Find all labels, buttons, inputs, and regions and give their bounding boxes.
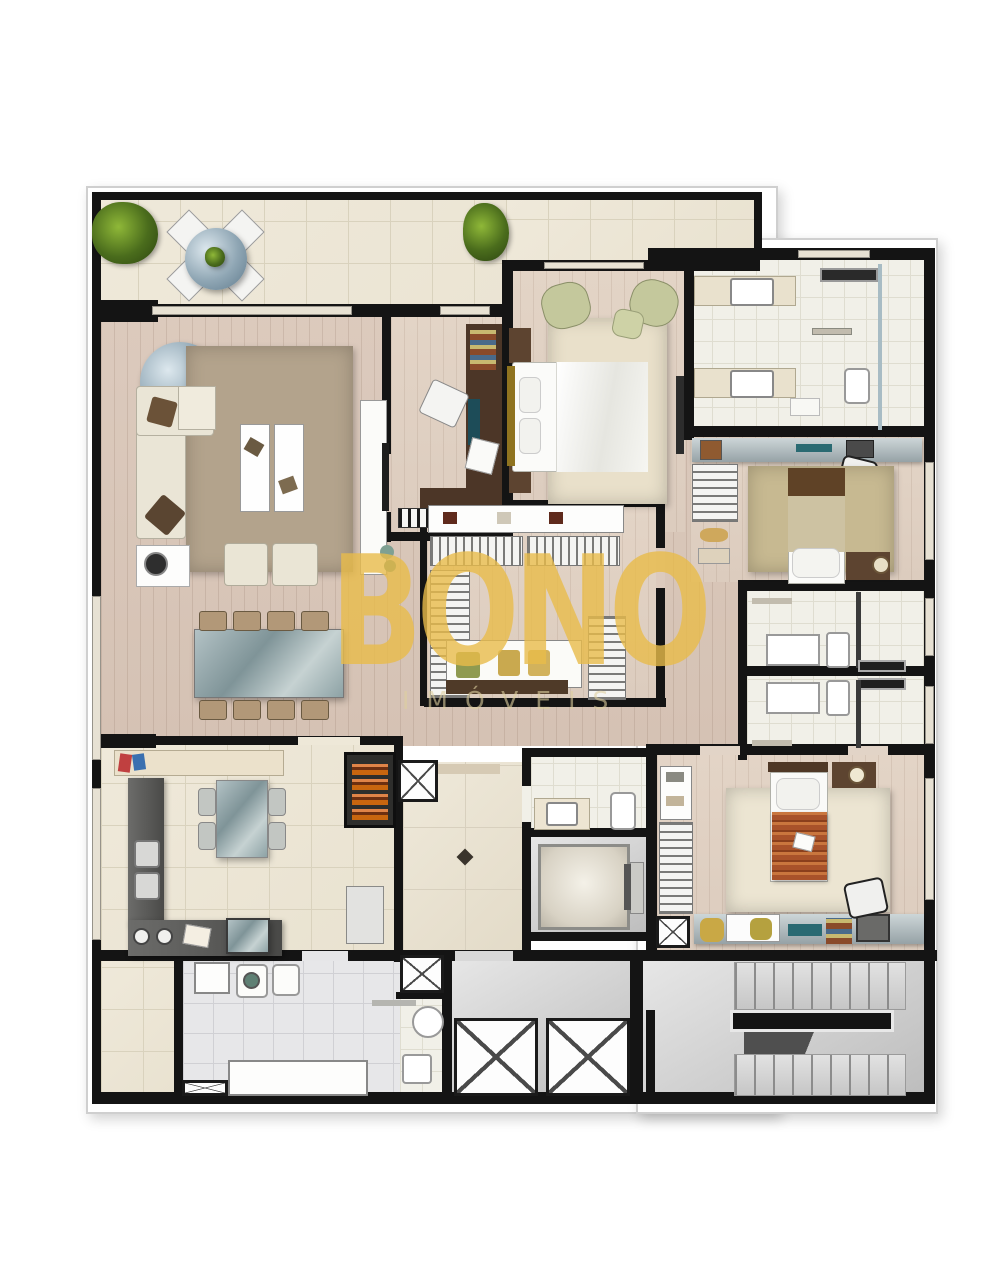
decor-bowl xyxy=(384,560,396,572)
kitchen-chair xyxy=(268,788,286,816)
elevator-shaft xyxy=(546,1018,630,1096)
door-gap xyxy=(700,746,740,755)
kitchen-chair xyxy=(268,822,286,850)
plant xyxy=(463,203,509,261)
lamp xyxy=(848,766,866,784)
sink xyxy=(546,802,578,826)
window xyxy=(798,250,870,258)
closet-rack xyxy=(527,536,620,566)
towel-bar xyxy=(812,328,852,335)
bath-shelf xyxy=(820,268,878,282)
shelf-dark xyxy=(858,660,906,672)
dining-chair xyxy=(233,611,261,631)
door-gap xyxy=(848,746,888,755)
window xyxy=(925,598,934,656)
wall xyxy=(522,748,652,757)
kitchen-chair xyxy=(198,788,216,816)
floor-grate xyxy=(182,1080,228,1096)
shoe-shelf xyxy=(428,505,624,533)
desk-books xyxy=(470,330,496,370)
elevator-rail xyxy=(624,864,631,910)
laptop xyxy=(788,924,822,936)
folded-clothes xyxy=(528,650,550,676)
burner xyxy=(133,928,150,945)
wall xyxy=(420,500,427,706)
shower-glass xyxy=(856,680,861,748)
wall xyxy=(522,748,531,960)
kitchen-table xyxy=(216,780,268,858)
dryer xyxy=(272,964,300,996)
blanket xyxy=(788,496,845,552)
kitchen-sink xyxy=(134,840,160,868)
pillow xyxy=(519,377,541,413)
toilet xyxy=(610,792,636,830)
pillow xyxy=(776,778,820,810)
wall xyxy=(648,248,935,260)
cooktop xyxy=(226,918,270,954)
vanity xyxy=(766,682,820,714)
dining-chair xyxy=(199,611,227,631)
storage-box xyxy=(698,548,730,564)
dining-chair xyxy=(199,700,227,720)
shoes xyxy=(443,512,457,524)
toilet xyxy=(844,368,870,404)
vanity xyxy=(766,634,820,666)
shoes xyxy=(666,772,684,782)
towel-bar xyxy=(752,598,792,604)
sofa-chaise xyxy=(178,386,216,430)
plant xyxy=(92,202,158,264)
wall xyxy=(924,254,935,1100)
toilet xyxy=(402,1054,432,1084)
air-shaft xyxy=(400,955,444,993)
stairs-flight xyxy=(734,962,906,1010)
wall xyxy=(688,426,926,437)
shoes xyxy=(666,796,684,806)
window xyxy=(925,686,934,744)
dining-chair xyxy=(233,700,261,720)
window xyxy=(152,306,352,315)
wall xyxy=(396,992,446,999)
tv xyxy=(382,443,389,511)
dining-chair xyxy=(267,611,295,631)
window xyxy=(92,788,101,940)
window xyxy=(440,306,490,315)
kitchen-items xyxy=(118,753,132,772)
wall xyxy=(754,192,762,256)
towel-bar xyxy=(752,740,792,746)
coffee-table xyxy=(274,424,304,512)
headboard xyxy=(768,762,828,772)
elevator-door xyxy=(630,862,644,914)
pillow xyxy=(792,548,840,578)
lamp xyxy=(872,556,890,574)
table-plant xyxy=(205,247,225,267)
cutting-board xyxy=(182,924,211,948)
doormat xyxy=(428,764,500,774)
washer-door xyxy=(243,972,260,989)
desk-item xyxy=(796,444,832,452)
door-gap xyxy=(455,951,513,961)
dining-chair xyxy=(301,611,329,631)
headboard xyxy=(507,366,515,466)
wall xyxy=(684,260,694,440)
kitchen-items xyxy=(132,753,146,771)
elevator-shaft xyxy=(454,1018,538,1096)
apartment-floor-plan xyxy=(0,0,1001,1280)
shelf-dark xyxy=(858,678,906,690)
kitchen-sink xyxy=(134,872,160,900)
stairs-flight xyxy=(734,1054,906,1096)
toilet xyxy=(826,680,850,716)
desk-shelf xyxy=(700,440,722,460)
decor-bowl xyxy=(380,545,394,559)
coffee-table xyxy=(240,424,270,512)
closet-rack xyxy=(588,616,626,700)
closet-rack xyxy=(692,464,738,522)
pouf xyxy=(750,918,772,940)
sink xyxy=(412,1006,444,1038)
wall xyxy=(656,504,665,704)
balcony-floor xyxy=(101,961,174,1094)
burner xyxy=(156,928,173,945)
wall xyxy=(94,192,760,200)
dining-chair xyxy=(267,700,295,720)
service-counter xyxy=(228,1060,368,1096)
armchair xyxy=(272,543,318,586)
window xyxy=(544,262,644,269)
dining-chair xyxy=(301,700,329,720)
shoes xyxy=(549,512,563,524)
wall xyxy=(92,300,158,322)
sink xyxy=(730,370,774,398)
blanket xyxy=(788,468,845,496)
pillow xyxy=(519,418,541,454)
window xyxy=(925,778,934,900)
record-player xyxy=(144,552,168,576)
sink xyxy=(730,278,774,306)
shower-glass xyxy=(878,264,882,430)
door-gap xyxy=(656,548,665,588)
pouf xyxy=(700,918,724,942)
dining-table xyxy=(194,629,344,698)
kitchen-chair xyxy=(198,822,216,850)
bath-mat xyxy=(790,398,820,416)
folded-clothes xyxy=(456,652,480,678)
closet-bench xyxy=(446,680,568,694)
folded-clothes xyxy=(498,650,520,676)
door-gap xyxy=(302,951,348,961)
air-shaft xyxy=(656,916,690,948)
toilet xyxy=(826,632,850,668)
wall xyxy=(646,1010,655,1098)
fridge xyxy=(346,886,384,944)
magazines xyxy=(826,918,852,944)
closet-rack xyxy=(659,822,693,914)
printer xyxy=(856,914,890,942)
wall-tv xyxy=(676,376,684,454)
shoes xyxy=(497,512,511,524)
window xyxy=(92,596,101,760)
window xyxy=(925,462,934,560)
shoes xyxy=(700,528,728,542)
wall xyxy=(174,958,183,1096)
door-gap xyxy=(298,737,360,745)
wall xyxy=(424,698,666,707)
wall xyxy=(522,932,655,941)
door-gap xyxy=(522,786,531,822)
shower-glass xyxy=(856,592,861,668)
stairs-landing xyxy=(730,1010,894,1032)
armchair xyxy=(224,543,268,586)
elevator-car xyxy=(538,844,630,930)
closet-rack xyxy=(430,536,523,566)
duvet xyxy=(556,362,648,472)
wall xyxy=(630,950,643,1096)
air-shaft xyxy=(398,760,438,802)
floor-plan-canvas: BONO IMÓVEIS xyxy=(0,0,1001,1280)
laundry-sink xyxy=(194,962,230,994)
nightstand xyxy=(509,328,531,363)
bbq-skewers xyxy=(352,760,388,820)
towel-bar xyxy=(372,1000,416,1006)
